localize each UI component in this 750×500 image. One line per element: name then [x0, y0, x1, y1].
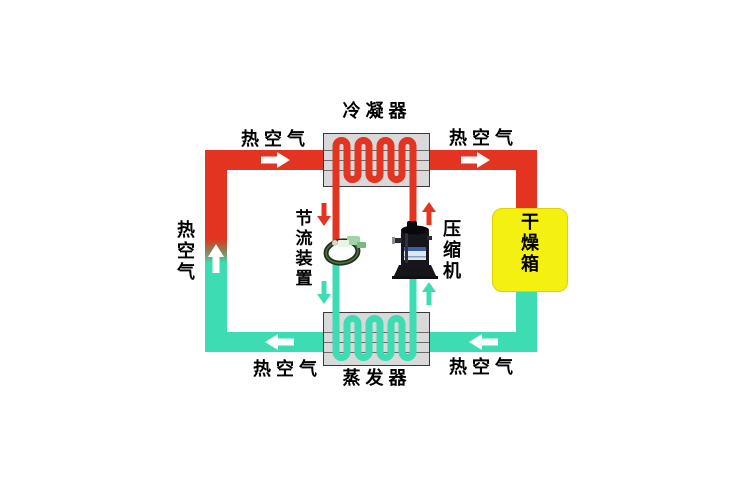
throttle-fitting: [347, 236, 360, 245]
throttle-fitting: [332, 240, 338, 246]
hot-air-label-top-left: 热空气: [241, 129, 310, 149]
compressor-label-band: [404, 247, 426, 260]
evaporator-duct-line: [324, 352, 429, 353]
throttle-fitting: [338, 240, 349, 247]
hot-air-label-bottom-left: 热空气: [253, 359, 322, 379]
refrigerant-arrow-evaporator-to-compressor: [422, 282, 436, 305]
duct-right-upper: [516, 150, 537, 212]
duct-bottom-right: [427, 332, 537, 352]
throttle-label: 节流装置: [292, 209, 316, 289]
refrigerant-arrow-throttle-to-evaporator: [317, 281, 331, 304]
drying-box-label: 干燥箱: [518, 212, 542, 276]
evaporator-duct-line: [324, 332, 429, 333]
refrigerant-arrow-compressor-to-condenser: [422, 202, 436, 225]
condenser-label: 冷凝器: [324, 101, 430, 121]
evaporator-label: 蒸发器: [324, 368, 430, 388]
compressor-icon: [392, 221, 438, 279]
diagram-canvas: 冷凝器 蒸发器 热空气 热空气 热空气 热空气 热空气 节流装置 压缩机 干燥箱: [0, 0, 750, 500]
diagram-overlay: [0, 0, 750, 500]
condenser-duct-line: [324, 150, 429, 151]
refrigerant-arrow-condenser-to-throttle: [317, 203, 331, 226]
throttle-device-icon: [325, 236, 366, 265]
hot-air-label-bottom-right: 热空气: [449, 357, 518, 377]
condenser-duct-line: [324, 170, 429, 171]
evaporator-duct-line: [324, 342, 429, 343]
throttle-fitting: [357, 242, 366, 248]
compressor-label: 压缩机: [440, 219, 464, 283]
hot-air-label-left-vertical: 热空气: [174, 220, 198, 284]
condenser-duct-line: [324, 160, 429, 161]
evaporator-box: [323, 312, 430, 366]
duct-left-vertical: [205, 150, 227, 352]
condenser-box: [323, 133, 430, 187]
hot-air-label-top-right: 热空气: [449, 128, 518, 148]
